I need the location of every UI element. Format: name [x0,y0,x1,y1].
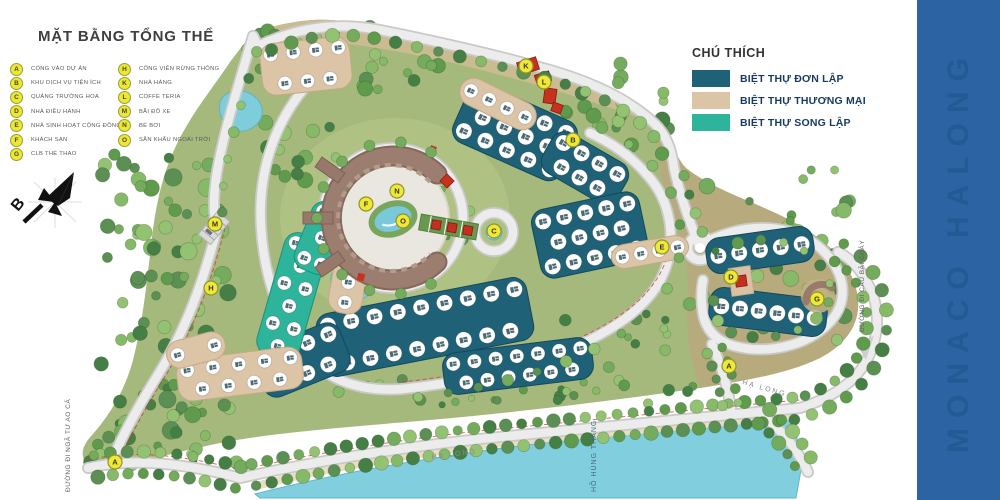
map-marker-O: O [396,214,410,228]
compass-north-label: B [8,195,28,215]
legend-item-O: OSÂN KHẤU NGOÀI TRỜI [118,133,219,147]
map-marker-D: D [724,270,738,284]
brand-strip-text: MONACO HALONG [942,48,976,453]
map-marker-B: B [566,133,580,147]
amenities-legend-col1: ACỔNG VÀO DỰ ÁNBKHU DỊCH VỤ TIỆN ÍCHCQUẢ… [10,62,118,161]
map-marker-A: A [108,455,122,469]
villa-type-legend-title: CHÚ THÍCH [692,46,917,60]
legend-label-G: CLB THỂ THAO [31,151,77,157]
legend-badge-K: K [118,77,131,90]
legend-label-A: CỔNG VÀO DỰ ÁN [31,66,87,72]
legend-label-C: QUẢNG TRƯỜNG HOA [31,94,99,100]
legend-badge-E: E [10,119,23,132]
coast-road-label-2: HẠ LONG [741,379,787,398]
legend-badge-G: G [10,148,23,161]
svg-text:H: H [208,284,213,293]
legend-item-A: ACỔNG VÀO DỰ ÁN [10,62,118,76]
svg-text:K: K [523,62,529,71]
legend-badge-D: D [10,105,23,118]
legend-item-D: DNHÀ ĐIỀU HÀNH [10,105,118,119]
svg-text:A: A [112,458,118,467]
map-marker-N: N [390,184,404,198]
svg-text:E: E [659,243,664,252]
svg-text:D: D [728,273,734,282]
villa-type-swatch-2 [692,114,730,131]
villa-type-label-2: BIỆT THỰ SONG LẬP [740,117,851,129]
villa-type-row-0: BIỆT THỰ ĐƠN LẬP [692,70,917,87]
legend-label-N: BỂ BƠI [139,123,161,129]
amenities-legend: ACỔNG VÀO DỰ ÁNBKHU DỊCH VỤ TIỆN ÍCHCQUẢ… [10,62,219,161]
legend-badge-H: H [118,63,131,76]
legend-item-N: NBỂ BƠI [118,119,219,133]
map-marker-E: E [655,240,669,254]
legend-badge-M: M [118,105,131,118]
villa-type-label-0: BIỆT THỰ ĐƠN LẬP [740,73,844,85]
map-marker-F: F [359,197,373,211]
svg-text:N: N [394,187,399,196]
legend-badge-A: A [10,63,23,76]
west-road-label: ĐƯỜNG ĐI NGÃ TƯ AO CÁ [63,399,72,492]
legend-label-H: CÔNG VIÊN RỪNG THÔNG [139,66,219,72]
svg-text:G: G [814,295,820,304]
legend-label-L: COFFE TERIA [139,94,181,100]
villa-type-legend: CHÚ THÍCH BIỆT THỰ ĐƠN LẬPBIỆT THỰ THƯƠN… [692,46,917,136]
legend-label-E: NHÀ SINH HOẠT CỘNG ĐỒNG [31,123,121,129]
page-title: MẶT BẰNG TỔNG THỂ [38,28,214,45]
map-marker-M: M [208,217,222,231]
villa-type-swatch-1 [692,92,730,109]
legend-item-H: HCÔNG VIÊN RỪNG THÔNG [118,62,219,76]
legend-item-E: ENHÀ SINH HOẠT CỘNG ĐỒNG [10,119,118,133]
svg-text:F: F [364,200,369,209]
legend-badge-B: B [10,77,23,90]
legend-badge-L: L [118,91,131,104]
svg-text:M: M [212,220,218,229]
villa-type-label-1: BIỆT THỰ THƯƠNG MẠI [740,95,866,107]
svg-text:L: L [542,78,547,87]
legend-label-D: NHÀ ĐIỀU HÀNH [31,109,81,115]
map-marker-K: K [519,59,533,73]
legend-label-M: BÃI ĐỖ XE [139,109,171,115]
east-roundabout-island [695,243,705,253]
legend-label-K: NHÀ HÀNG [139,80,172,86]
legend-item-C: CQUẢNG TRƯỜNG HOA [10,90,118,104]
legend-item-K: KNHÀ HÀNG [118,76,219,90]
map-marker-G: G [810,292,824,306]
svg-text:C: C [491,227,497,236]
legend-item-F: FKHÁCH SẠN [10,133,118,147]
legend-badge-O: O [118,134,131,147]
legend-label-B: KHU DỊCH VỤ TIỆN ÍCH [31,80,101,86]
map-marker-L: L [537,75,551,89]
legend-item-M: MBÃI ĐỖ XE [118,105,219,119]
map-marker-A: A [722,359,736,373]
map-marker-H: H [204,281,218,295]
legend-badge-F: F [10,134,23,147]
compass-rose: B [8,172,82,228]
svg-text:O: O [400,217,406,226]
legend-item-B: BKHU DỊCH VỤ TIỆN ÍCH [10,76,118,90]
legend-badge-C: C [10,91,23,104]
brand-strip: MONACO HALONG [917,0,1000,500]
legend-label-O: SÂN KHẤU NGOÀI TRỜI [139,137,210,143]
site-plan-page: B AAMHFNOCKLBEDG HẠ LONG HẠ LONG ĐƯỜNG Đ… [0,0,1000,500]
amenities-legend-col2: HCÔNG VIÊN RỪNG THÔNGKNHÀ HÀNGLCOFFE TER… [118,62,219,161]
legend-label-F: KHÁCH SẠN [31,137,68,143]
legend-item-L: LCOFFE TERIA [118,90,219,104]
legend-item-G: GCLB THỂ THAO [10,147,118,161]
svg-text:A: A [726,362,732,371]
villa-type-legend-items: BIỆT THỰ ĐƠN LẬPBIỆT THỰ THƯƠNG MẠIBIỆT … [692,70,917,131]
villa-type-row-1: BIỆT THỰ THƯƠNG MẠI [692,92,917,109]
villa-type-row-2: BIỆT THỰ SONG LẬP [692,114,917,131]
red-kiosk-pond [357,273,365,281]
map-marker-C: C [487,224,501,238]
svg-text:B: B [570,136,576,145]
villa-type-swatch-0 [692,70,730,87]
legend-badge-N: N [118,119,131,132]
